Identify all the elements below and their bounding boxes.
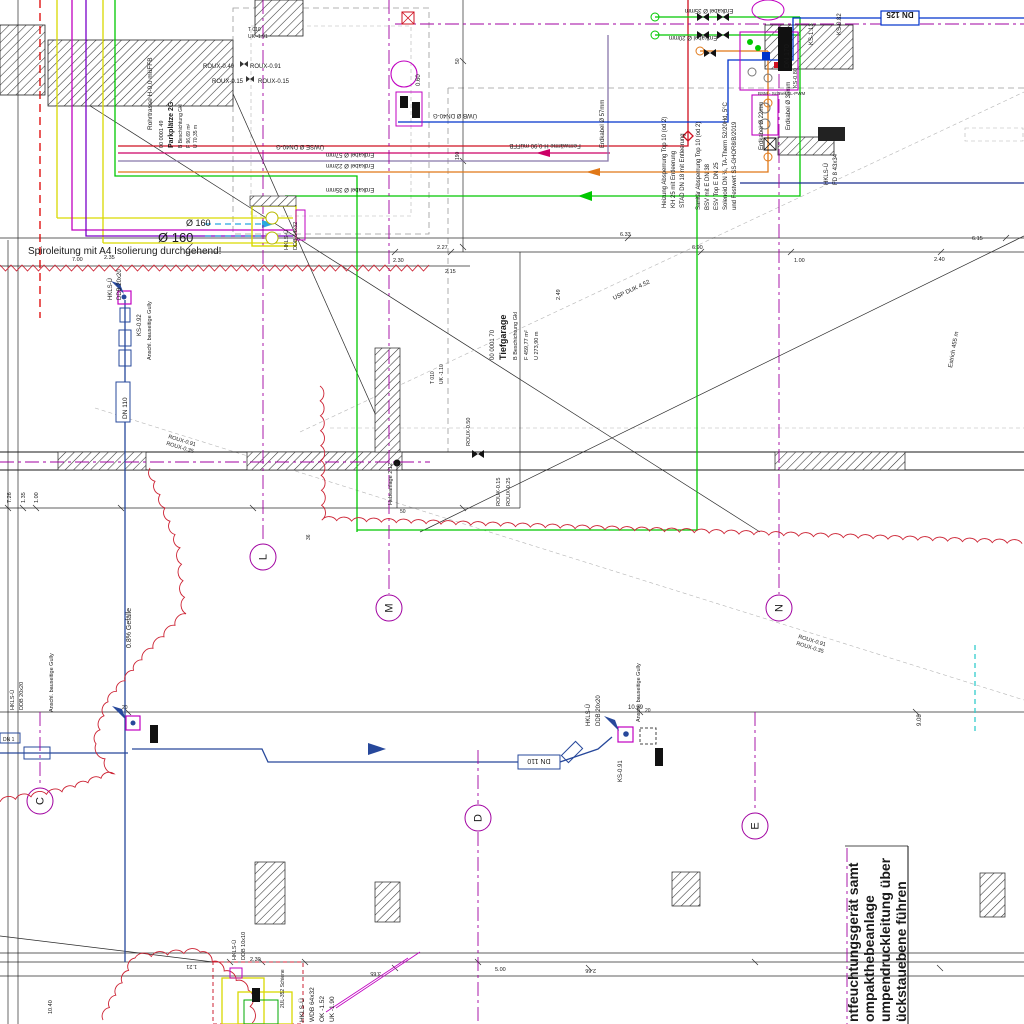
hkls-c-1: HKLS-Ü	[585, 704, 592, 726]
equipment-dot-blue	[762, 52, 770, 60]
construction-outlines	[62, 8, 1024, 700]
t010-mid-1: T 010	[430, 371, 436, 384]
grid-bubble-E: E	[742, 813, 768, 839]
grid-bubble-N: N	[766, 595, 792, 621]
rohrtrasse-label: Rohrtrasse H-0,0 müFFB	[147, 57, 154, 130]
red-arrow-icon	[536, 149, 550, 157]
dim-100: 1.00	[794, 258, 805, 264]
drain-block-1	[150, 725, 158, 743]
pipe-label-kabel22: Erdkabel Ø 22mm	[326, 162, 374, 168]
drain-fitting-5	[561, 741, 582, 762]
grid-letter-e: E	[750, 822, 762, 829]
gully-2-drain-icon	[131, 721, 136, 726]
valve-notes-sanitaer: Sanitär Absperrung Top 10 (od 2) BSV mit…	[696, 101, 738, 210]
pipe-label-kabel35-v: Erdkabel Ø 35mm	[786, 82, 792, 130]
hkls-bl-1: HKLS-Ü	[9, 690, 16, 710]
parking-name: Parkplätze 2G	[168, 101, 175, 148]
equipment-dot-green-2	[755, 45, 761, 51]
room-stamp-parking: 00 0001 49 Parkplätze 2G B Beschichtung …	[159, 101, 199, 148]
annotations: Spiroleitung mit A4 Isolierung durchgehe…	[3, 7, 983, 1022]
pier-hatch-2	[375, 882, 400, 922]
grid-letter-m: M	[384, 603, 396, 612]
shaft-block	[252, 988, 260, 1002]
garage-area: F 459,77 m²	[524, 330, 530, 360]
hkls-duct-1: HKLS-Ü	[283, 230, 290, 250]
heizung-line-1: Heizung Absperrung Top 10 (od 2)	[662, 117, 668, 208]
parking-no: 00 0001 49	[159, 120, 165, 148]
estrich-label: Estrich 455 m	[948, 331, 960, 368]
ks-082: KS-0.82	[837, 13, 843, 35]
gully-3-drain-icon	[623, 731, 629, 737]
t010-top-2: UK -1.91	[248, 34, 268, 40]
dn110-h-label: DN 110	[527, 757, 550, 764]
roux-015-v: ROUX-0.15	[496, 478, 502, 506]
grid-letter-n: N	[774, 604, 786, 612]
garage-no: 00 0001 70	[490, 329, 496, 360]
dim-240: 2.40	[934, 257, 945, 263]
dn110-v-label: DN 110	[122, 397, 129, 419]
duct-end-port-2	[266, 232, 278, 244]
grid-letter-l: L	[258, 554, 270, 560]
ks-091: KS-0.91	[618, 760, 624, 782]
wall-hatch-mid-1	[58, 452, 146, 470]
dim-615: 6.15	[972, 236, 983, 242]
dn-left-label: DN 1	[3, 737, 15, 743]
note-line-3: umpendruckleitung über	[877, 857, 893, 1022]
dim-633: 6.33	[620, 232, 631, 238]
dim-20: 20	[122, 705, 128, 711]
ks-113: KS-1.13	[809, 23, 815, 45]
cloud-middle	[320, 386, 1022, 544]
note-line-2: ompakthebeanlage	[861, 895, 877, 1022]
dim-121: 1.21	[186, 963, 197, 969]
parking-perim: U 70,35 m	[193, 125, 199, 148]
hkls-c-2: DDB 20x20	[596, 695, 602, 726]
pipe-label-kabel22-v: Erdkabel Ø 22mm	[759, 102, 765, 150]
roux-040: ROUX-0.40	[203, 64, 235, 70]
grid-bubble-D: D	[465, 805, 491, 831]
ks-092: KS-0.92	[137, 314, 143, 336]
pipe-label-uwb: ÜWB Ø DN40-G	[433, 112, 477, 119]
pipe-label-kabel57: Erdkabel Ø 57mm	[326, 151, 374, 157]
pump-circle	[391, 61, 417, 87]
dim-249: 2.49	[556, 289, 562, 300]
wall-hatch-topleft-2	[48, 40, 233, 106]
dn170-label: DN 170	[784, 44, 791, 68]
dia160-big: Ø 160	[158, 230, 193, 245]
pier-hatch-3	[672, 872, 700, 906]
sanitaer-line-1: Sanitär Absperrung Top 10 (od 2)	[696, 122, 702, 210]
note-line-1: ntfeuchtungsgerät samt	[845, 862, 861, 1022]
wall-hatch-topleft-1	[0, 25, 45, 95]
grid-letter-d: D	[473, 814, 485, 822]
pump-rating: 0.60	[416, 74, 422, 86]
dim-230b: 2.30	[250, 957, 261, 963]
sanitaer-line-3: ESV Top E DN 25	[714, 162, 720, 210]
dim-230: 2.30	[393, 258, 404, 264]
leader-magenta-2	[326, 958, 408, 1012]
parking-area: F 96,69 m²	[186, 123, 192, 148]
hkls-wdb-1: HKLS-Ü	[298, 998, 306, 1022]
gefaelle-label: 0.8% Gefälle	[126, 608, 133, 648]
pipe-label-kabel57-v: Erdkabel Ø 57mm	[600, 100, 606, 148]
hkls-wdb-4: UK -1.90	[329, 996, 336, 1022]
garage-perim: U 273,90 m	[534, 331, 540, 360]
spiro-note: Spiroleitung mit A4 Isolierung durchgehe…	[28, 246, 221, 257]
dim-100b: 1.00	[34, 492, 40, 503]
roux-050-v: ROUX-0.50	[466, 418, 472, 446]
dim-50v: 50	[455, 58, 461, 64]
dim-266: 2.66	[585, 967, 596, 973]
hkls-right-2: FD 8 43x34	[833, 153, 839, 185]
dim-500: 5.00	[495, 967, 506, 973]
dim-ticks	[5, 58, 1009, 971]
pipe-blue-main	[398, 18, 1024, 122]
grid-bubble-L: L	[250, 544, 276, 570]
drain-flow-arrow-icon	[368, 743, 386, 755]
wall-hatch-top	[255, 0, 303, 36]
drainage	[0, 281, 975, 962]
gully-note-1: Anschl. bauseitige Gully	[147, 301, 153, 360]
pump-block-1	[400, 96, 408, 108]
marker-x-red-icon	[402, 12, 414, 24]
schiene-label: 2UL-352 Schiene	[280, 969, 286, 1008]
garage-name: Tiefgarage	[498, 315, 508, 360]
equipment-dot-gray-1	[748, 68, 756, 76]
pipe-label-kabel35: Erdkabel Ø 35mm	[326, 186, 374, 192]
leader-magenta-1	[336, 952, 420, 1008]
bsm-label: BSM - Schnell LL-PWM	[758, 91, 806, 96]
dim-1039: 10.39	[628, 705, 644, 711]
cloud-left	[0, 468, 186, 802]
dark-box-right	[818, 127, 845, 141]
dia160-small: Ø 160	[186, 218, 211, 228]
grid-letter-c: C	[35, 797, 47, 805]
duct-end-port-1	[266, 212, 278, 224]
dim-20b: 20	[645, 708, 651, 714]
dim-215: 2.15	[445, 269, 456, 275]
dim-190: 190	[455, 151, 461, 160]
note-block: ntfeuchtungsgerät samt ompakthebeanlage …	[845, 857, 909, 1022]
wall-hatch-column	[375, 348, 400, 452]
hkls-shaft-1: HKLS-Ü	[231, 940, 238, 960]
duct-end-hatch	[250, 196, 296, 206]
hkls-right-1: HKLS-Ü	[823, 163, 830, 185]
valve-icon-roux050	[472, 450, 484, 458]
dim-365: 3.65	[370, 970, 381, 976]
grid-bubble-M: M	[376, 595, 402, 621]
dim-235: 2.35	[104, 255, 115, 261]
note-line-4: ückstauebene führen	[893, 881, 909, 1022]
dim-36: 36	[306, 534, 312, 540]
valve-notes-heizung: Heizung Absperrung Top 10 (od 2) KH 25 m…	[662, 117, 686, 208]
dim-726: 7.26	[7, 492, 13, 503]
hkls-wdb-2: WDB 64x32	[309, 987, 316, 1022]
parking-finish: B Beschichtung Gkl	[178, 104, 184, 148]
room-stamp-garage: 00 0001 70 Tiefgarage B Beschichtung Gkl…	[490, 312, 540, 360]
heizung-line-3: STAD DN 18 mit Entleerung	[680, 133, 686, 208]
cad-plan-screenshot: { "title": "Tiefgarage Installationsplan…	[0, 0, 1024, 1024]
wall-hatch-mid-3	[775, 452, 905, 470]
hkls-left-2: DDB 20x20	[117, 269, 123, 300]
pier-hatch-1	[255, 862, 285, 924]
pipe-label-fernwaerme: Fernwärme H-0,90 müFFB	[509, 142, 580, 148]
dim-50: 50	[400, 509, 406, 515]
t010-top-1: T 010	[248, 27, 261, 33]
dim-700: 7.00	[72, 257, 83, 263]
drain-dashed-box	[640, 728, 656, 744]
dim-1040: 10.40	[48, 1000, 54, 1014]
floor-plan-canvas: L M N C D E	[0, 0, 1024, 1024]
sanitaer-line-4: Solenoid DN ¼, TA-Therm 52/20Hd, 5°C	[723, 101, 729, 210]
diag-label-right: ROUX-0.91 ROUX-0.35	[795, 634, 826, 655]
t010-mid-2: UK -1.10	[439, 364, 445, 384]
roux-015: ROUX-0.15	[212, 79, 244, 85]
sanitaer-line-5: und Festwert SS-GHOR8/B/2019	[732, 121, 738, 210]
dashed-box-right	[965, 128, 1023, 141]
ks-080: KS-0.80	[793, 68, 799, 88]
orange-arrow-icon	[586, 168, 600, 176]
hkls-duct-2: DDB 64x32	[293, 222, 299, 250]
sanitaer-line-2: BSV mit E DN 38	[705, 163, 711, 210]
dim-690: 6.90	[692, 245, 703, 251]
pipe-label-kabel20: Erdkabel Ø 20mm	[669, 34, 717, 40]
hkls-shaft-2: DDB 10x10	[241, 932, 247, 960]
pipe-label-kabel35-top: Erdkabel Ø 35mm	[685, 7, 733, 13]
gully-note-3: Anschl. bauseitige Gully	[636, 663, 642, 722]
roux-015b: ROUX-0.15	[258, 79, 290, 85]
pier-hatch-4	[980, 873, 1005, 917]
hebeanlage-label: Hebeanlage 2.12	[388, 463, 394, 505]
dn125-label: DN 125	[886, 10, 914, 19]
shaft-green	[244, 1000, 278, 1024]
roux-025-v: ROUX-0.25	[506, 478, 512, 506]
drain-block-2	[655, 748, 663, 766]
gully-3-arrow-icon	[604, 716, 619, 731]
dim-135: 1.35	[21, 492, 27, 503]
marker-x-black-icon	[764, 138, 776, 150]
heizung-line-2: KH 25 mit Entleerung	[671, 151, 677, 208]
pump-block-2	[412, 102, 420, 118]
hkls-bl-2: DDB 20x20	[19, 682, 25, 710]
equipment-dot-green-1	[747, 39, 753, 45]
pipe-label-uwse: ÜWSE Ø DN40-G	[276, 143, 324, 150]
green-arrow-icon	[578, 191, 592, 201]
dim-227: 2.27	[437, 245, 448, 251]
roux-091: ROUX-0.91	[250, 64, 282, 70]
dim-908: 9.08	[917, 714, 923, 726]
hkls-wdb-3: OK -1.52	[319, 996, 326, 1022]
garage-finish: B Beschichtung Gkl	[513, 312, 519, 360]
gully-note-2: Anschl. bauseitige Gully	[49, 653, 55, 712]
hkls-left-1: HKLS-Ü	[107, 278, 114, 300]
